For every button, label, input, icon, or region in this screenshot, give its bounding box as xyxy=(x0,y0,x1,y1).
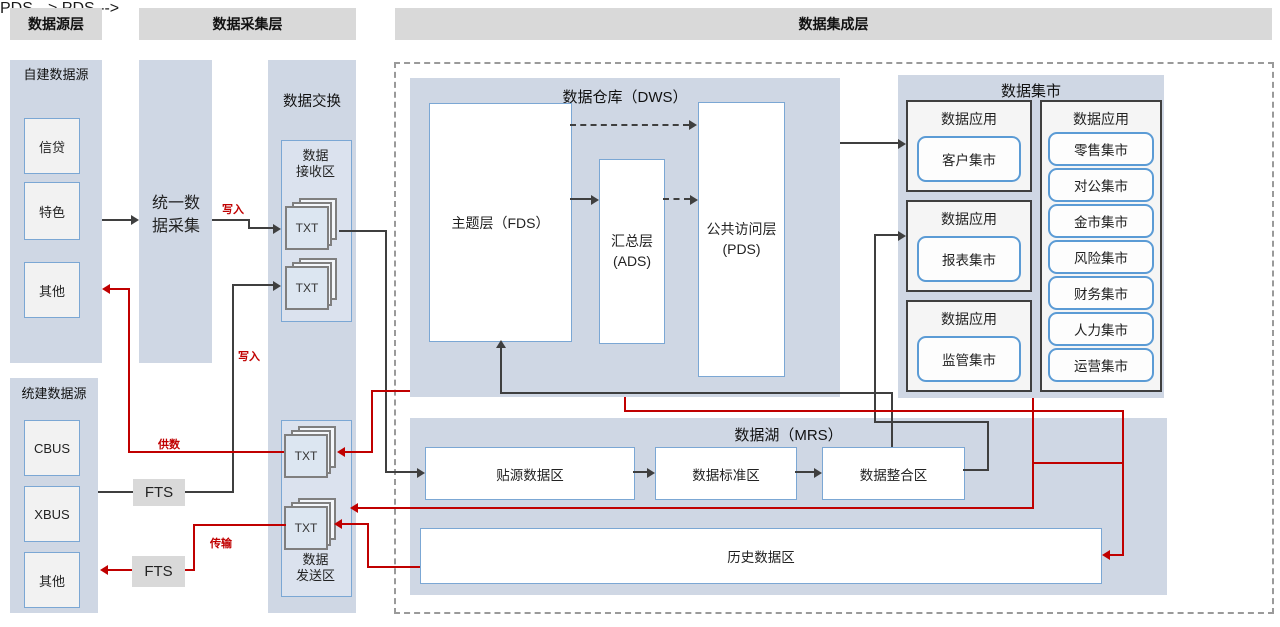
source-box-other-self: 其他 xyxy=(24,262,80,318)
source-box-special: 特色 xyxy=(24,182,80,240)
mrs-zone-staging: 贴源数据区 xyxy=(425,447,635,500)
red-edge-supply-c xyxy=(110,288,130,290)
mart-operations: 运营集市 xyxy=(1048,348,1154,382)
arrowhead xyxy=(591,195,599,205)
header-data-collection-layer: 数据采集层 xyxy=(139,8,356,40)
red-edge-trunk-b xyxy=(624,410,1124,412)
txt-label: TXT xyxy=(285,206,329,250)
red-edge-history-to-txt2-a xyxy=(367,566,420,568)
red-edge-supply-b xyxy=(128,289,130,453)
arrowhead xyxy=(337,447,345,457)
arrowhead xyxy=(1102,550,1110,560)
mart-finance: 财务集市 xyxy=(1048,276,1154,310)
edge-integration-to-report-a xyxy=(963,469,989,471)
mart-retail: 零售集市 xyxy=(1048,132,1154,166)
arrowhead xyxy=(273,281,281,291)
txt-label: TXT xyxy=(284,506,328,550)
arrowhead xyxy=(690,195,698,205)
edge-fds-to-pds-dashed xyxy=(570,124,689,126)
arrowhead xyxy=(496,340,506,348)
fts-box-bottom: FTS xyxy=(132,556,185,587)
mart-customer: 客户集市 xyxy=(917,136,1021,182)
txt-file-icon-receive-1: TXT xyxy=(285,198,339,248)
red-edge-dws-feed-a xyxy=(371,390,410,392)
mrs-zone-standard: 数据标准区 xyxy=(655,447,797,500)
red-edge-dws-feed-b xyxy=(371,390,373,453)
receive-zone-label: 数据 接收区 xyxy=(281,148,350,181)
edge-txt1-to-staging-c xyxy=(385,471,418,473)
txt-file-icon-send-1: TXT xyxy=(284,426,338,476)
txt-label: TXT xyxy=(284,434,328,478)
arrowhead xyxy=(131,215,139,225)
red-edge-trunk-c xyxy=(1122,410,1124,556)
unified-collection-label: 统一数据采集 xyxy=(146,192,206,238)
edge-fds-to-ads xyxy=(570,198,592,200)
arrowhead xyxy=(350,503,358,513)
red-edge-transfer-d xyxy=(108,569,132,571)
edge-integration-to-report-c xyxy=(874,421,989,423)
arrowhead xyxy=(417,468,425,478)
edge-special-to-collect xyxy=(102,219,132,221)
data-app-label: 数据应用 xyxy=(1042,109,1160,129)
ads-box: 汇总层 (ADS) xyxy=(599,159,665,344)
edge-integration-to-fds-c xyxy=(500,348,502,394)
edge-integration-to-fds-a xyxy=(891,393,893,447)
self-built-source-title: 自建数据源 xyxy=(10,64,102,83)
edge-collect-to-txt1-c xyxy=(248,227,274,229)
mart-corporate: 对公集市 xyxy=(1048,168,1154,202)
source-box-credit: 信贷 xyxy=(24,118,80,174)
edge-label-write-top: 写入 xyxy=(222,201,244,217)
mart-report: 报表集市 xyxy=(917,236,1021,282)
header-data-source-layer: 数据源层 xyxy=(10,8,102,40)
edge-staging-to-standard xyxy=(633,471,648,473)
red-edge-connector xyxy=(1032,462,1124,464)
edge-txt1-to-staging-b xyxy=(385,230,387,473)
fds-box: 主题层（FDS） xyxy=(429,103,572,342)
red-edge-history-to-txt2-b xyxy=(367,524,369,568)
red-edge-mart-to-send-b xyxy=(358,507,1034,509)
arrowhead xyxy=(100,565,108,575)
edge-standard-to-integration xyxy=(795,471,815,473)
edge-collect-to-txt1-a xyxy=(212,219,250,221)
edge-integration-to-report-e xyxy=(874,234,899,236)
data-app-label: 数据应用 xyxy=(908,209,1030,229)
red-edge-transfer-b xyxy=(193,524,195,571)
data-app-label: 数据应用 xyxy=(908,109,1030,129)
architecture-diagram: 数据源层 数据采集层 数据集成层 自建数据源 信贷 特色 其他 统建数据源 CB… xyxy=(0,0,1280,627)
txt-file-icon-receive-2: TXT xyxy=(285,258,339,308)
red-edge-transfer-a xyxy=(193,524,286,526)
red-edge-dws-feed-c xyxy=(344,451,372,453)
red-edge-history-to-txt2-c xyxy=(341,523,369,525)
arrowhead xyxy=(273,224,281,234)
fts-box-top: FTS xyxy=(133,479,185,506)
edge-fts-to-txt2-a xyxy=(185,491,234,493)
arrowhead xyxy=(898,231,906,241)
source-box-cbus: CBUS xyxy=(24,420,80,476)
red-edge-supply-a xyxy=(128,451,284,453)
mart-hr: 人力集市 xyxy=(1048,312,1154,346)
arrowhead xyxy=(898,139,906,149)
red-edge-mart-to-send-a xyxy=(1032,398,1034,509)
data-app-label: 数据应用 xyxy=(908,309,1030,329)
edge-ads-to-pds-dashed xyxy=(663,198,690,200)
edge-integration-to-report-d xyxy=(874,234,876,423)
mart-risk: 风险集市 xyxy=(1048,240,1154,274)
txt-file-icon-send-2: TXT xyxy=(284,498,338,548)
arrowhead xyxy=(334,519,342,529)
edge-label-transfer: 传输 xyxy=(210,535,232,551)
edge-txt1-to-staging-a xyxy=(339,230,387,232)
arrowhead xyxy=(647,468,655,478)
data-exchange-title: 数据交换 xyxy=(268,90,356,111)
source-box-other-unified: 其他 xyxy=(24,552,80,608)
mrs-title: 数据湖（MRS） xyxy=(410,424,1167,445)
mrs-history-zone: 历史数据区 xyxy=(420,528,1102,584)
pds-box: 公共访问层 (PDS) xyxy=(698,102,785,377)
arrowhead xyxy=(814,468,822,478)
edge-dws-to-customer xyxy=(840,142,899,144)
edge-integration-to-report-b xyxy=(987,421,989,471)
mart-regulatory: 监管集市 xyxy=(917,336,1021,382)
arrowhead xyxy=(689,120,697,130)
send-zone-label: 数据 发送区 xyxy=(281,552,350,585)
edge-unified-to-fts xyxy=(98,491,133,493)
source-box-xbus: XBUS xyxy=(24,486,80,542)
data-mart-title: 数据集市 xyxy=(898,80,1164,101)
edge-label-write-bottom: 写入 xyxy=(238,348,260,364)
arrowhead xyxy=(102,284,110,294)
edge-label-supply: 供数 xyxy=(158,436,180,452)
edge-fts-to-txt2-b xyxy=(232,284,234,493)
red-edge-trunk-d xyxy=(1110,554,1124,556)
red-edge-transfer-c xyxy=(185,569,195,571)
edge-fts-to-txt2-c xyxy=(232,284,274,286)
header-data-integration-layer: 数据集成层 xyxy=(395,8,1272,40)
unified-source-title: 统建数据源 xyxy=(10,383,98,402)
txt-label: TXT xyxy=(285,266,329,310)
mrs-zone-integration: 数据整合区 xyxy=(822,447,965,500)
edge-integration-to-fds-b xyxy=(500,392,893,394)
mart-money-market: 金市集市 xyxy=(1048,204,1154,238)
